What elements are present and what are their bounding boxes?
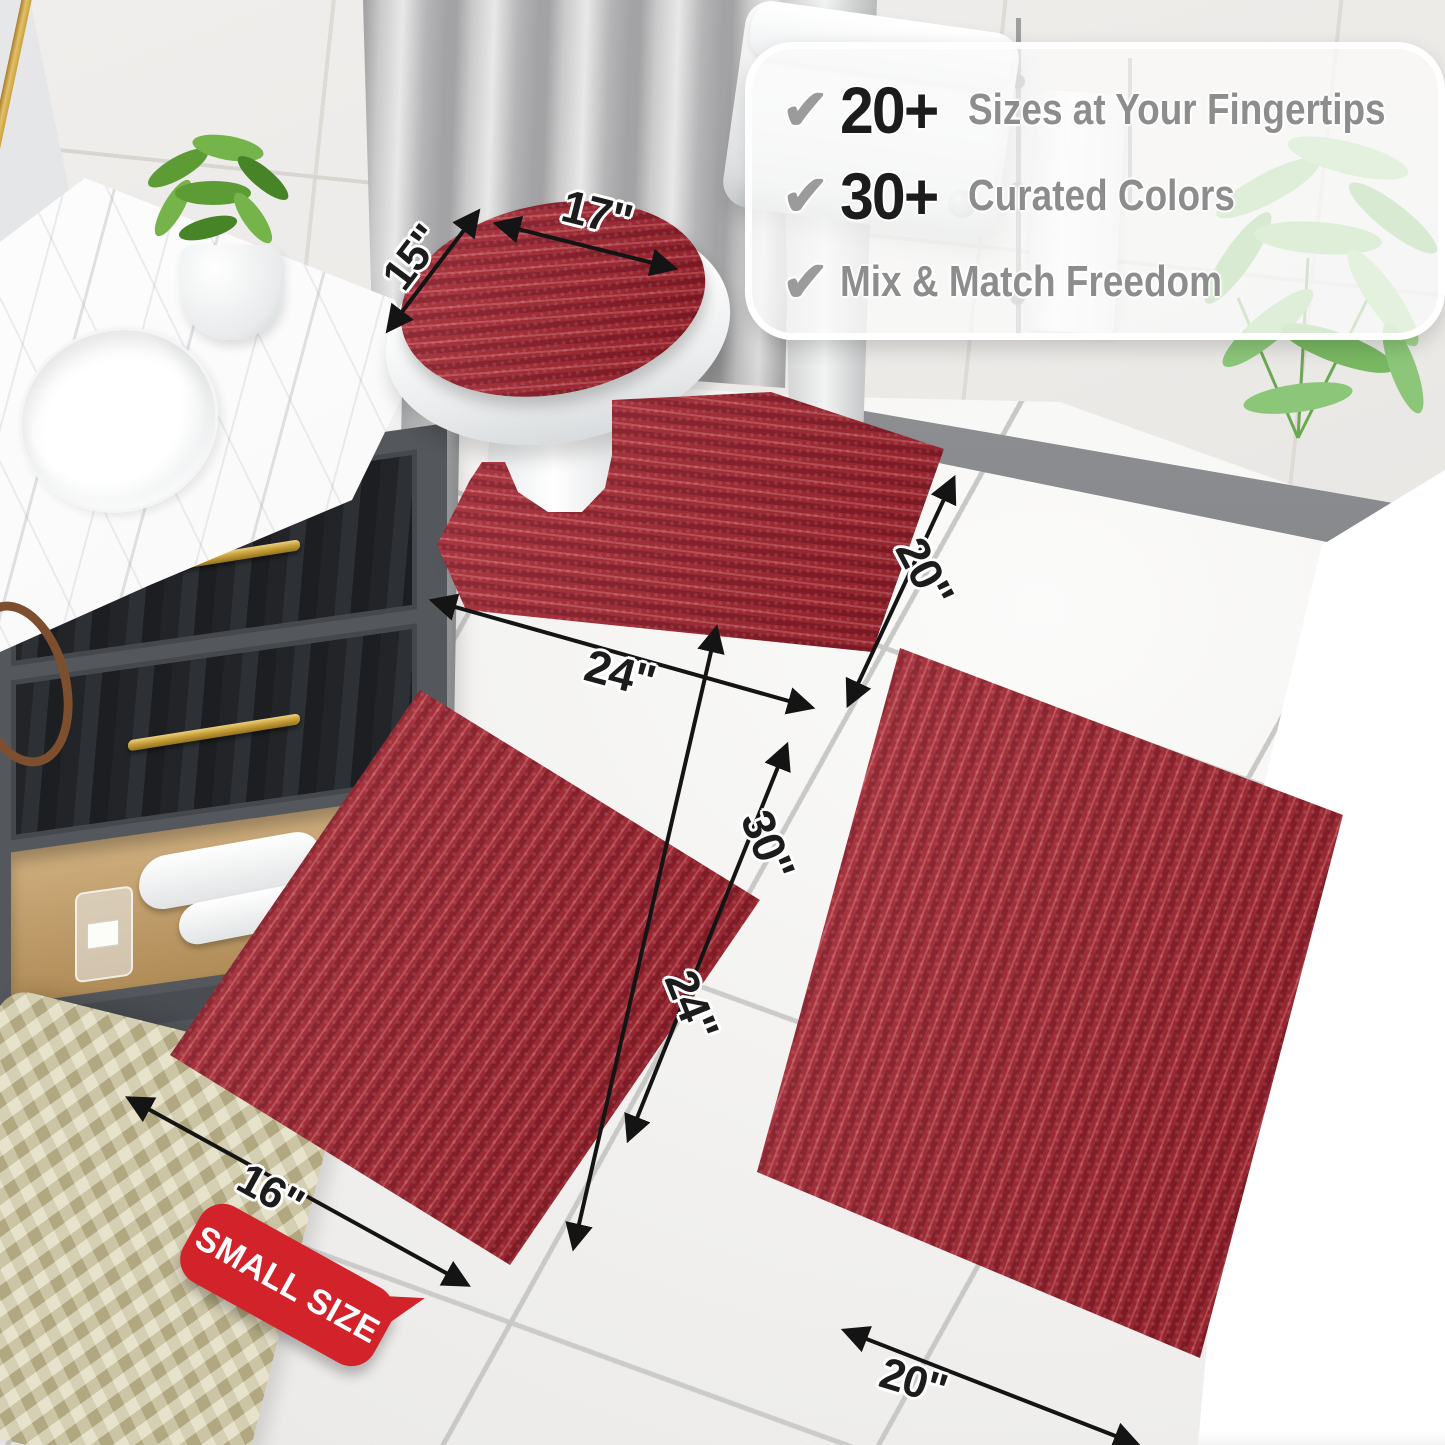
feature-row-mix-match: ✔ Mix & Match Freedom — [782, 239, 1438, 325]
bathroom-product-scene: 15" 17" 24" 20" 16" 24" 30" 20" SMALL SI… — [0, 0, 1445, 1445]
feature-label: Mix & Match Freedom — [840, 257, 1222, 307]
feature-number: 30+ — [840, 158, 958, 234]
feature-number: 20+ — [840, 72, 958, 148]
potted-plant-small — [118, 108, 308, 258]
feature-label: Curated Colors — [968, 171, 1235, 221]
feature-callout-panel: ✔ 20+ Sizes at Your Fingertips ✔ 30+ Cur… — [745, 42, 1445, 340]
glass-jar — [75, 885, 133, 983]
check-icon: ✔ — [782, 163, 840, 229]
badge-tail — [377, 1296, 425, 1334]
feature-row-sizes: ✔ 20+ Sizes at Your Fingertips — [782, 67, 1438, 153]
feature-row-colors: ✔ 30+ Curated Colors — [782, 153, 1438, 239]
check-icon: ✔ — [782, 77, 840, 143]
plant-pot — [180, 245, 282, 340]
check-icon: ✔ — [782, 249, 840, 315]
feature-label: Sizes at Your Fingertips — [968, 85, 1386, 135]
drawer-handle — [128, 713, 300, 751]
jar-label — [87, 919, 119, 949]
